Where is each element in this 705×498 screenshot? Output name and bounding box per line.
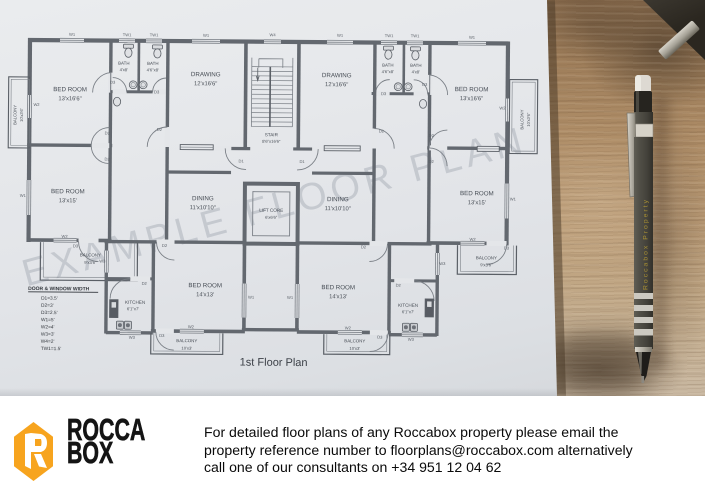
svg-text:W3: W3 bbox=[129, 335, 136, 340]
svg-text:BED ROOM: BED ROOM bbox=[188, 282, 222, 289]
svg-text:BED ROOM: BED ROOM bbox=[321, 284, 355, 291]
svg-text:D3: D3 bbox=[110, 80, 116, 85]
svg-text:LIFT CORE: LIFT CORE bbox=[259, 208, 283, 213]
svg-text:10'x3': 10'x3' bbox=[181, 346, 192, 351]
svg-text:14'x13': 14'x13' bbox=[329, 294, 347, 300]
svg-text:8'6"x16'6": 8'6"x16'6" bbox=[262, 139, 281, 144]
svg-text:W1: W1 bbox=[337, 33, 344, 38]
svg-text:D3: D3 bbox=[381, 91, 387, 96]
svg-text:13'x15': 13'x15' bbox=[468, 200, 486, 206]
svg-text:W4=2': W4=2' bbox=[41, 339, 55, 345]
svg-text:6'1"x7': 6'1"x7' bbox=[127, 306, 139, 311]
svg-text:D2: D2 bbox=[105, 131, 111, 136]
svg-text:9'x3'6": 9'x3'6" bbox=[480, 262, 493, 267]
svg-text:W3=3': W3=3' bbox=[41, 332, 55, 338]
svg-text:12'x16'6": 12'x16'6" bbox=[194, 81, 217, 87]
svg-text:10'x3'6": 10'x3'6" bbox=[19, 107, 24, 121]
svg-text:D2: D2 bbox=[104, 157, 110, 162]
svg-text:DINING: DINING bbox=[327, 196, 349, 203]
svg-text:W1: W1 bbox=[248, 295, 255, 300]
svg-text:W2=4': W2=4' bbox=[41, 324, 55, 330]
svg-text:BALCONY: BALCONY bbox=[176, 338, 197, 343]
svg-text:BALCONY: BALCONY bbox=[344, 338, 365, 343]
svg-text:KITCHEN: KITCHEN bbox=[398, 303, 418, 308]
svg-text:13'x15': 13'x15' bbox=[59, 198, 77, 204]
svg-text:W1: W1 bbox=[20, 193, 27, 198]
svg-text:D2: D2 bbox=[142, 281, 148, 286]
svg-text:W4: W4 bbox=[269, 32, 276, 37]
svg-text:W2: W2 bbox=[345, 325, 352, 330]
svg-text:BATH: BATH bbox=[382, 63, 393, 68]
svg-text:DRAWING: DRAWING bbox=[322, 72, 352, 79]
svg-text:BALCONY: BALCONY bbox=[519, 109, 524, 129]
svg-text:D3=2.5': D3=2.5' bbox=[41, 310, 58, 316]
svg-text:D3: D3 bbox=[73, 243, 79, 248]
svg-text:TW1=1.5': TW1=1.5' bbox=[41, 346, 62, 352]
svg-text:D3: D3 bbox=[377, 335, 383, 340]
svg-text:BED ROOM: BED ROOM bbox=[51, 188, 85, 195]
svg-text:W2: W2 bbox=[33, 102, 40, 107]
svg-text:BED ROOM: BED ROOM bbox=[455, 86, 489, 93]
svg-text:D2=3': D2=3' bbox=[41, 303, 54, 309]
svg-text:W2: W2 bbox=[499, 105, 506, 110]
svg-text:13'x16'6": 13'x16'6" bbox=[58, 96, 81, 102]
svg-text:BALCONY: BALCONY bbox=[12, 105, 17, 125]
svg-text:D2: D2 bbox=[361, 244, 367, 249]
svg-text:D2: D2 bbox=[429, 133, 435, 138]
svg-text:D3: D3 bbox=[422, 82, 428, 87]
svg-text:W3: W3 bbox=[408, 337, 415, 342]
svg-text:BED ROOM: BED ROOM bbox=[53, 86, 87, 93]
svg-text:4'x8': 4'x8' bbox=[120, 67, 129, 72]
svg-text:TW1: TW1 bbox=[150, 32, 159, 37]
svg-text:4'6"x8': 4'6"x8' bbox=[382, 69, 394, 74]
svg-text:6'x6'6": 6'x6'6" bbox=[265, 215, 278, 220]
svg-text:D1: D1 bbox=[299, 159, 305, 164]
svg-text:11'x10'10": 11'x10'10" bbox=[325, 206, 351, 212]
svg-text:W1: W1 bbox=[287, 295, 294, 300]
svg-text:D2: D2 bbox=[396, 283, 402, 288]
svg-text:W2: W2 bbox=[469, 237, 476, 242]
svg-text:10'x3': 10'x3' bbox=[349, 346, 360, 351]
svg-text:KITCHEN: KITCHEN bbox=[125, 300, 145, 305]
svg-text:W1: W1 bbox=[203, 33, 210, 38]
svg-text:D2: D2 bbox=[157, 127, 163, 132]
svg-text:W1: W1 bbox=[469, 35, 476, 40]
svg-text:9'x3'6": 9'x3'6" bbox=[84, 260, 97, 265]
svg-text:BALCONY: BALCONY bbox=[80, 252, 101, 257]
svg-text:4'6"x8': 4'6"x8' bbox=[147, 67, 159, 72]
svg-text:D3: D3 bbox=[159, 333, 165, 338]
svg-text:W2: W2 bbox=[61, 234, 68, 239]
svg-text:BATH: BATH bbox=[147, 61, 158, 66]
svg-text:11'x10'10": 11'x10'10" bbox=[190, 205, 216, 211]
svg-text:D2: D2 bbox=[379, 129, 385, 134]
svg-text:13'x16'6": 13'x16'6" bbox=[460, 96, 483, 102]
svg-text:4'x8': 4'x8' bbox=[412, 69, 421, 74]
svg-text:D1: D1 bbox=[238, 159, 244, 164]
svg-text:STAIR: STAIR bbox=[265, 132, 279, 137]
svg-text:DINING: DINING bbox=[192, 195, 214, 202]
svg-text:D3: D3 bbox=[154, 89, 160, 94]
svg-text:W3: W3 bbox=[99, 259, 106, 264]
svg-text:TW1: TW1 bbox=[123, 32, 132, 37]
svg-text:D2: D2 bbox=[428, 159, 434, 164]
svg-text:6'1"x7': 6'1"x7' bbox=[402, 309, 414, 314]
svg-text:BATH: BATH bbox=[118, 61, 129, 66]
svg-text:TW1: TW1 bbox=[385, 33, 394, 38]
svg-text:D1=3.5': D1=3.5' bbox=[41, 296, 58, 302]
svg-text:W1=5': W1=5' bbox=[41, 317, 55, 323]
svg-text:D2: D2 bbox=[162, 243, 168, 248]
svg-text:D3: D3 bbox=[504, 245, 510, 250]
svg-text:W2: W2 bbox=[188, 324, 195, 329]
svg-text:14'x13': 14'x13' bbox=[196, 292, 214, 298]
svg-text:W3: W3 bbox=[439, 261, 446, 266]
svg-text:BED ROOM: BED ROOM bbox=[460, 190, 494, 197]
svg-text:BATH: BATH bbox=[410, 63, 421, 68]
svg-text:12'x16'6": 12'x16'6" bbox=[325, 82, 348, 88]
svg-text:TW1: TW1 bbox=[411, 33, 420, 38]
svg-text:DRAWING: DRAWING bbox=[191, 71, 221, 78]
svg-text:W1: W1 bbox=[69, 32, 76, 37]
svg-text:10'x3'6": 10'x3'6" bbox=[526, 112, 531, 126]
svg-text:W1: W1 bbox=[510, 197, 517, 202]
svg-text:1st Floor Plan: 1st Floor Plan bbox=[240, 357, 308, 369]
svg-text:BALCONY: BALCONY bbox=[476, 255, 497, 260]
